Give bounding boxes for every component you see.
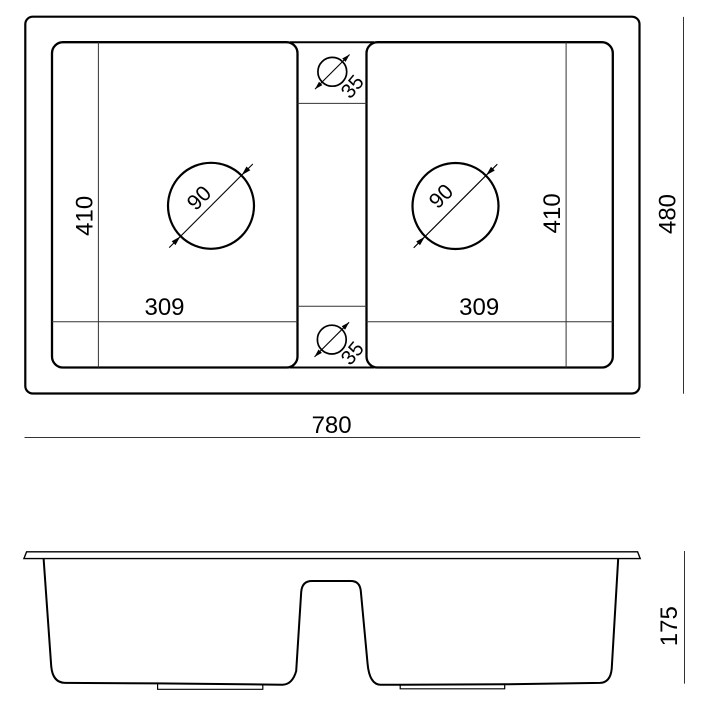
svg-text:410: 410 — [539, 193, 566, 233]
svg-text:780: 780 — [312, 412, 352, 439]
svg-text:175: 175 — [656, 606, 683, 646]
svg-text:309: 309 — [459, 294, 499, 321]
svg-text:410: 410 — [71, 196, 98, 236]
svg-text:309: 309 — [144, 294, 184, 321]
svg-text:480: 480 — [655, 194, 682, 234]
